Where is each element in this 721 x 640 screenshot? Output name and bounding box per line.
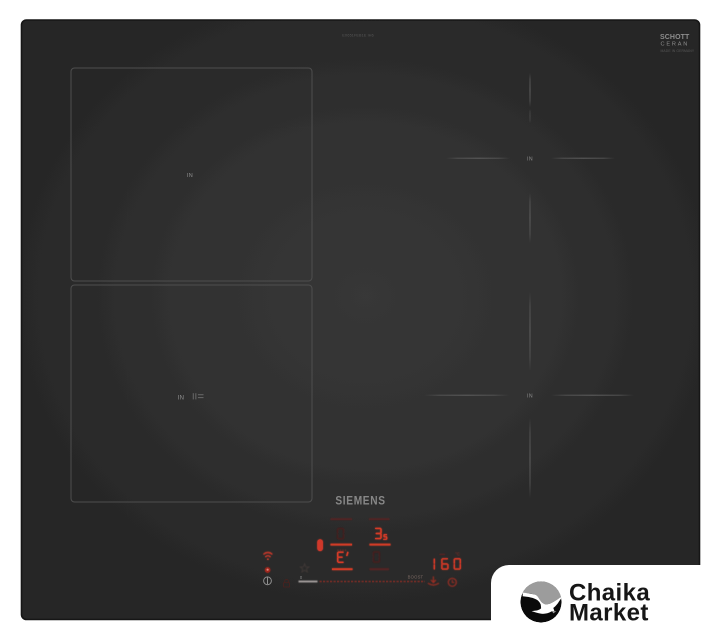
svg-text:°C: °C <box>455 551 460 556</box>
svg-text:SCHOTT: SCHOTT <box>660 34 690 41</box>
svg-text:SIEMENS: SIEMENS <box>335 495 385 508</box>
svg-text:BOOST: BOOST <box>408 575 424 580</box>
svg-text:IN: IN <box>527 156 533 162</box>
svg-text:EX651FEB1E IH6: EX651FEB1E IH6 <box>342 34 374 38</box>
svg-text:IN: IN <box>527 393 533 399</box>
svg-text:MADE IN GERMANY: MADE IN GERMANY <box>661 49 695 53</box>
svg-text:Market: Market <box>569 600 649 627</box>
svg-text:IN: IN <box>178 396 185 402</box>
svg-text:IN: IN <box>187 173 193 179</box>
svg-text:CERAN: CERAN <box>661 41 690 47</box>
